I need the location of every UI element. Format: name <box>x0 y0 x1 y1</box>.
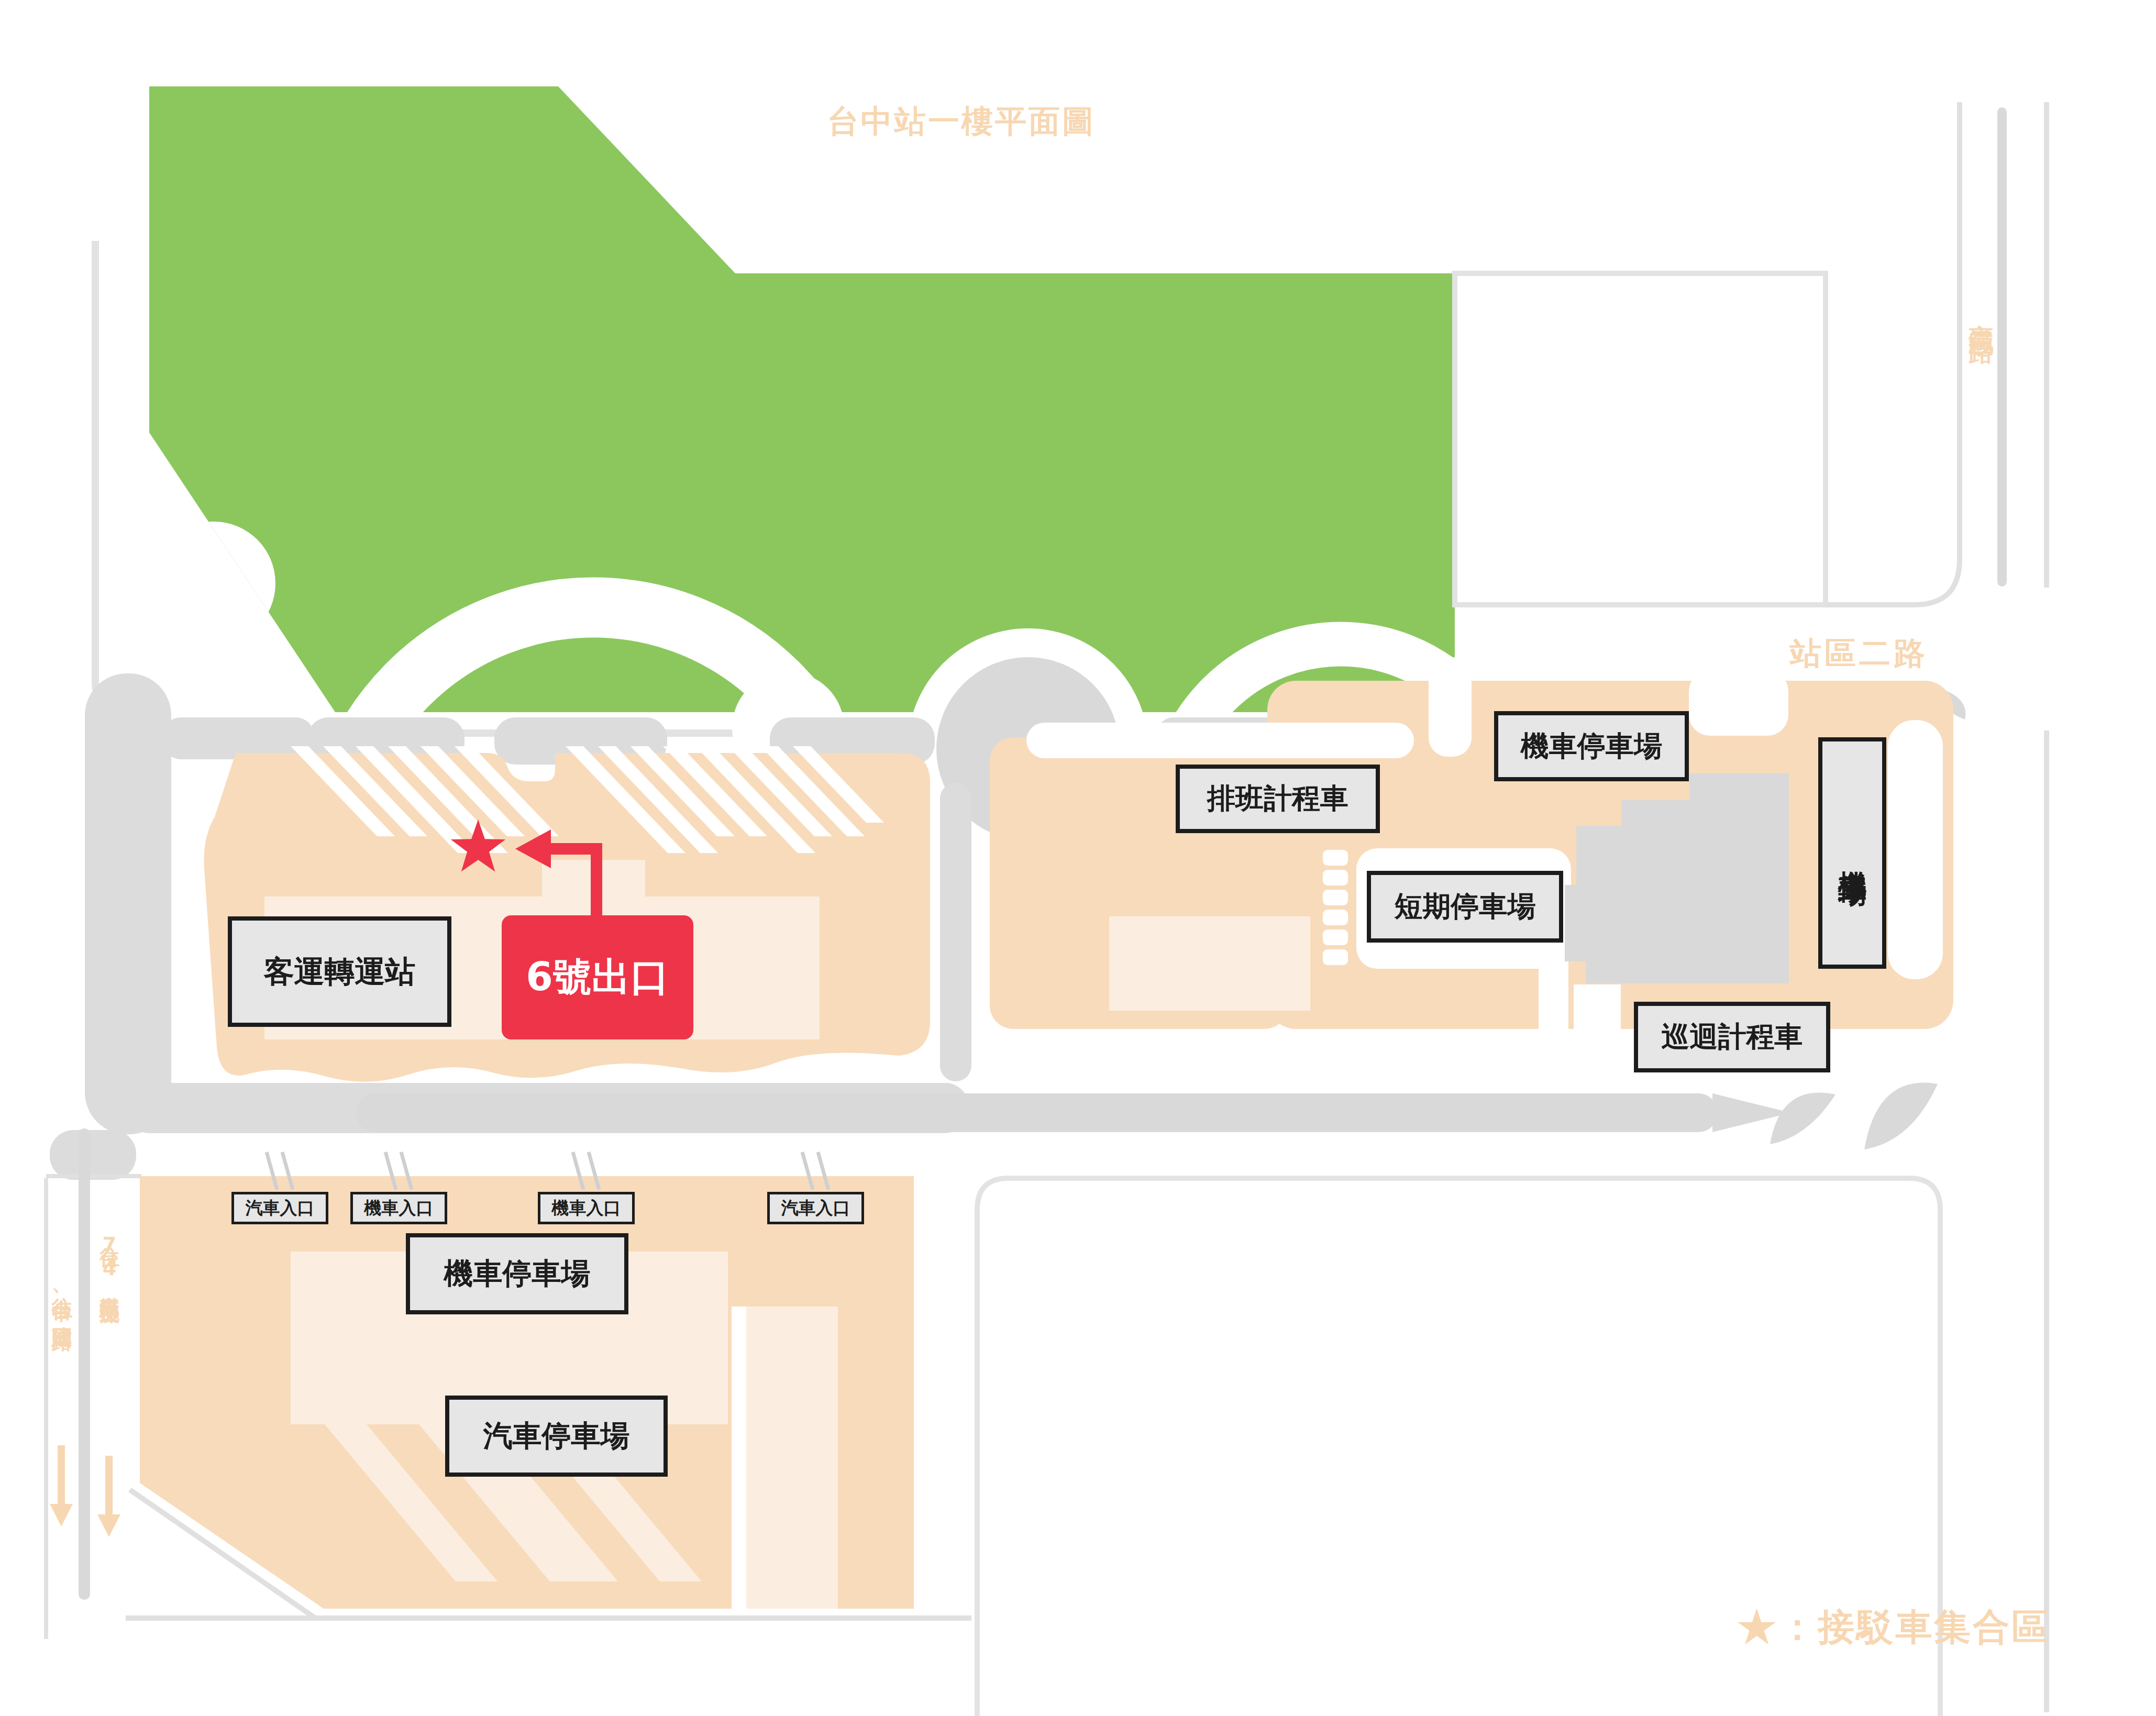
station-annex-outline <box>1455 273 1826 605</box>
moto-parking-north-label: 機車停車場 <box>1494 711 1689 781</box>
station-building-green <box>149 86 1455 712</box>
road-median-band <box>356 1093 1718 1132</box>
car-parking-south-label: 汽車停車場 <box>445 1396 668 1477</box>
arch-cutout-small <box>152 522 275 645</box>
ring-road-left <box>85 673 171 1134</box>
road-label-east: 高鐵三路 <box>1965 304 1998 325</box>
south-road-median <box>79 1128 90 1600</box>
short-term-parking-label: 短期停車場 <box>1367 871 1563 943</box>
entrance-label-car-2: 汽車入口 <box>767 1192 864 1224</box>
entrance-label-moto-1: 機車入口 <box>350 1192 447 1224</box>
taxi-queue-label: 排班計程車 <box>1176 765 1380 833</box>
roving-taxi-label: 巡迴計程車 <box>1634 1002 1830 1072</box>
arrow-head-south <box>97 1514 120 1537</box>
road-label-south-highway: 往台74高鐵烏日交流道 <box>96 1231 123 1288</box>
road-corner-curve <box>1826 559 1960 605</box>
bus-terminal-label: 客運轉運站 <box>228 916 451 1027</box>
road-east-median <box>1997 107 2007 586</box>
road-label-south-local: 往台中、建國路 <box>48 1280 77 1316</box>
inner-road <box>1026 723 1414 758</box>
station-floorplan-map: 台中站一樓平面圖 高鐵三路 站區二路 往台中、建國路 往台74高鐵烏日交流道 客… <box>0 0 2156 1716</box>
road-label-station-area: 站區二路 <box>1790 633 1928 675</box>
south-inner-strip <box>746 1307 838 1609</box>
moto-parking-south-label: 機車停車場 <box>406 1233 628 1314</box>
entrance-label-moto-2: 機車入口 <box>538 1192 635 1224</box>
exit-6-label: 6號出口 <box>502 915 693 1039</box>
inner-road-stub <box>1539 932 1568 1029</box>
road-wedge <box>1770 1093 1836 1144</box>
legend-text: ：接駁車集合區 <box>1779 1603 2050 1652</box>
inner-road-notch <box>1689 670 1788 736</box>
inner-road <box>1888 720 1943 979</box>
inner-road-stub <box>1574 984 1621 1034</box>
legend-shuttle-area: ★ ：接駁車集合區 <box>1734 1602 2050 1652</box>
inner-road <box>1429 657 1472 757</box>
east-inner-lot <box>1109 916 1310 1011</box>
arrow-head-south <box>50 1504 73 1526</box>
entrance-label-car-1: 汽車入口 <box>231 1192 328 1224</box>
south-inner-road <box>732 1307 746 1609</box>
map-title: 台中站一樓平面圖 <box>827 101 1096 143</box>
ring-road-corner <box>50 1130 136 1180</box>
moto-parking-east-label: 機車停車場 <box>1818 737 1886 969</box>
road-wedge <box>1864 1083 1938 1149</box>
ring-road-right <box>940 783 971 1081</box>
legend-star-icon: ★ <box>1734 1602 1779 1652</box>
